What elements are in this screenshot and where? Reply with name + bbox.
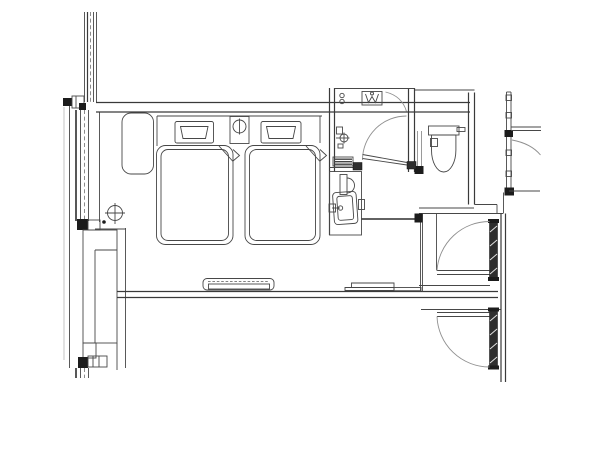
column-grid-marker: [102, 203, 125, 224]
luggage-bench-counter: [362, 214, 423, 223]
hinge-block: [505, 130, 514, 137]
pillow-right: [261, 122, 301, 144]
window-mullion-joint-top: [63, 96, 86, 110]
hinge-block: [505, 188, 515, 196]
door-swing-arc: [437, 317, 490, 368]
vanity-faucet: [329, 204, 340, 212]
toilet-bowl: [431, 135, 455, 172]
cistern: [429, 126, 460, 135]
twin-bed-right: [245, 122, 327, 245]
floor-plan-drawing: [0, 0, 600, 450]
lounge-chair: [122, 113, 154, 174]
entry-door-upper: [437, 219, 499, 281]
mattress: [245, 146, 320, 245]
fixture-mark: [340, 93, 344, 97]
door-swing-arc: [512, 140, 541, 155]
adjacent-unit-top-fragment: [340, 92, 407, 112]
glazed-partition-right: [504, 92, 515, 214]
toilet-with-cistern: [429, 126, 466, 172]
tv-console: [345, 283, 421, 291]
shower-threshold: [333, 157, 353, 166]
flush-handle: [457, 128, 465, 132]
door-swing-arc: [386, 92, 407, 112]
shower-door-swing: [363, 116, 408, 165]
door-jamb: [353, 163, 362, 171]
twin-beds: [157, 116, 327, 245]
door-swing-arc: [437, 221, 490, 270]
marker-dot: [102, 220, 106, 224]
washbasin-vanity: [329, 172, 365, 236]
pillow-left: [175, 122, 214, 144]
shower-room: [333, 116, 416, 170]
shelf-line: [394, 288, 421, 291]
window-bay-cabinet: [83, 228, 126, 370]
twin-bed-left: [157, 122, 240, 245]
door-jamb: [407, 162, 416, 170]
shower-mixer-fixture: [336, 127, 350, 148]
mattress: [157, 146, 234, 245]
curtain-wall-window: [63, 12, 126, 378]
floor-plan-canvas: [0, 0, 600, 450]
door-leaf-closed: [490, 222, 498, 279]
adjacent-unit-door-swings: [509, 127, 541, 191]
entry-door-lower: [437, 308, 499, 370]
nightstand-with-lamp: [230, 117, 249, 144]
wall-end-cap: [415, 214, 423, 223]
wall-console-dashed: [203, 279, 274, 291]
